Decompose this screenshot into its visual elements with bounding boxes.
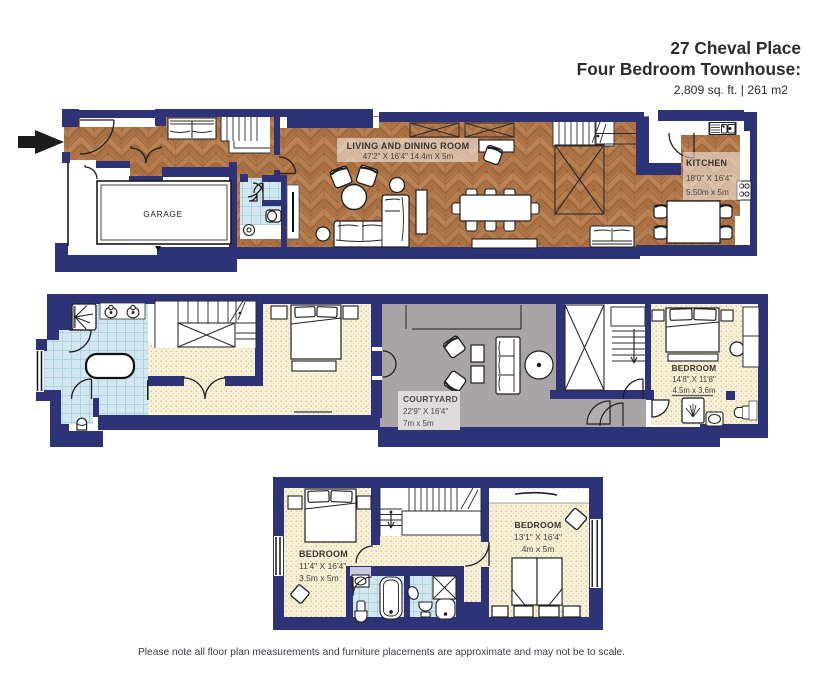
svg-text:14'8" X 11'8": 14'8" X 11'8" <box>672 375 716 384</box>
svg-text:LIVING AND DINING ROOM: LIVING AND DINING ROOM <box>347 141 470 151</box>
svg-text:13'1" X 16'4": 13'1" X 16'4" <box>514 532 562 542</box>
svg-text:7m x 5m: 7m x 5m <box>403 419 434 428</box>
svg-text:18'0" X 16'4": 18'0" X 16'4" <box>686 174 732 183</box>
svg-text:4m x 5m: 4m x 5m <box>522 544 555 554</box>
svg-text:27 Cheval Place: 27 Cheval Place <box>670 38 801 58</box>
svg-text:11'4" X 16'4": 11'4" X 16'4" <box>299 561 346 571</box>
svg-text:4.5m x 3.6m: 4.5m x 3.6m <box>673 386 716 395</box>
svg-text:BEDROOM: BEDROOM <box>515 520 562 530</box>
svg-text:2,809 sq. ft. | 261 m2: 2,809 sq. ft. | 261 m2 <box>674 83 788 97</box>
svg-text:5.50m x 5m: 5.50m x 5m <box>686 188 729 197</box>
svg-text:BEDROOM: BEDROOM <box>672 364 717 373</box>
svg-text:Please note all floor plan mea: Please note all floor plan measurements … <box>138 647 625 658</box>
svg-text:Four Bedroom Townhouse:: Four Bedroom Townhouse: <box>577 59 801 79</box>
svg-text:47'2" X 16'4" 14.4m X 5m: 47'2" X 16'4" 14.4m X 5m <box>363 152 454 161</box>
svg-text:3.5m x 5m: 3.5m x 5m <box>299 573 339 583</box>
svg-text:22'9" X 16'4": 22'9" X 16'4" <box>403 407 448 416</box>
svg-text:COURTYARD: COURTYARD <box>403 394 458 404</box>
svg-text:GARAGE: GARAGE <box>143 209 182 219</box>
svg-text:KITCHEN: KITCHEN <box>686 158 727 168</box>
svg-text:BEDROOM: BEDROOM <box>299 549 348 559</box>
